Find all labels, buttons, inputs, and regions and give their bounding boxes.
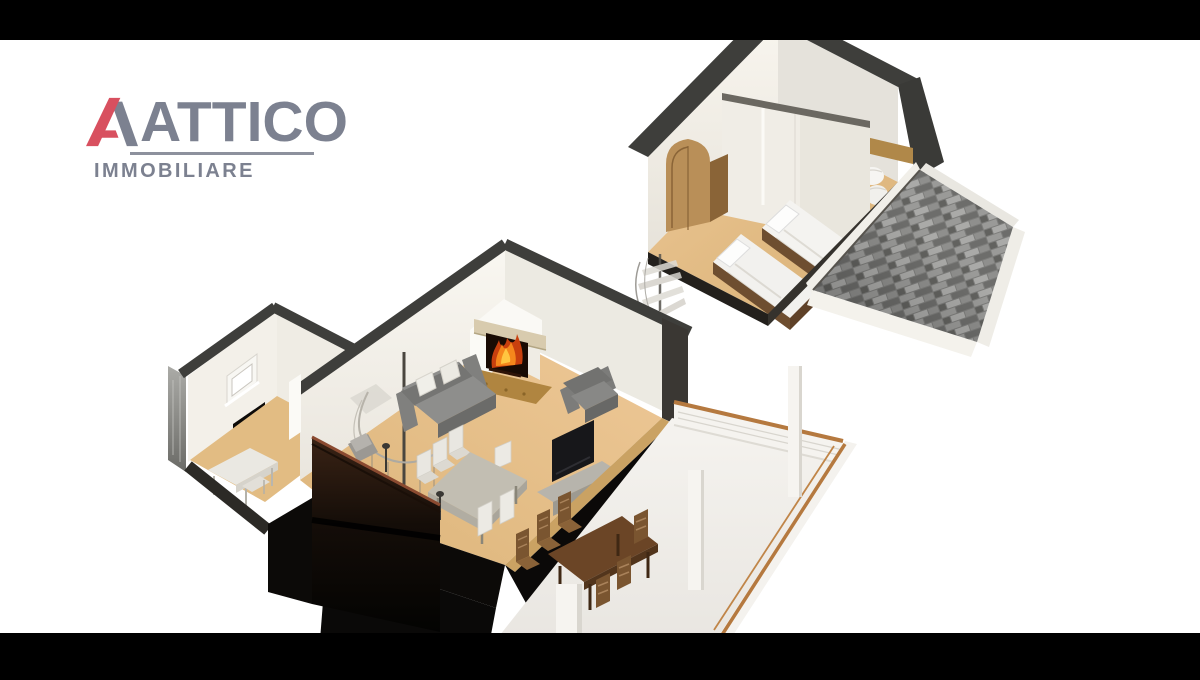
terrace-pillar [788,366,802,497]
letterbox-bottom [0,633,1200,680]
bedroom-wall-right-edge [898,77,944,178]
logo-subtitle: IMMOBILIARE [94,160,348,183]
door-gap [289,374,301,440]
logo-title: ATTICO [140,96,348,148]
screenshot-stage: ATTICO IMMOBILIARE [0,0,1200,680]
under-study-black [268,498,312,604]
logo-mark-a [86,96,138,148]
terrace-pillar [556,584,582,640]
terrace-pillar [688,470,704,590]
attico-logo: ATTICO IMMOBILIARE [86,96,348,183]
letterbox-top [0,0,1200,40]
study-outer-wall [168,366,186,472]
